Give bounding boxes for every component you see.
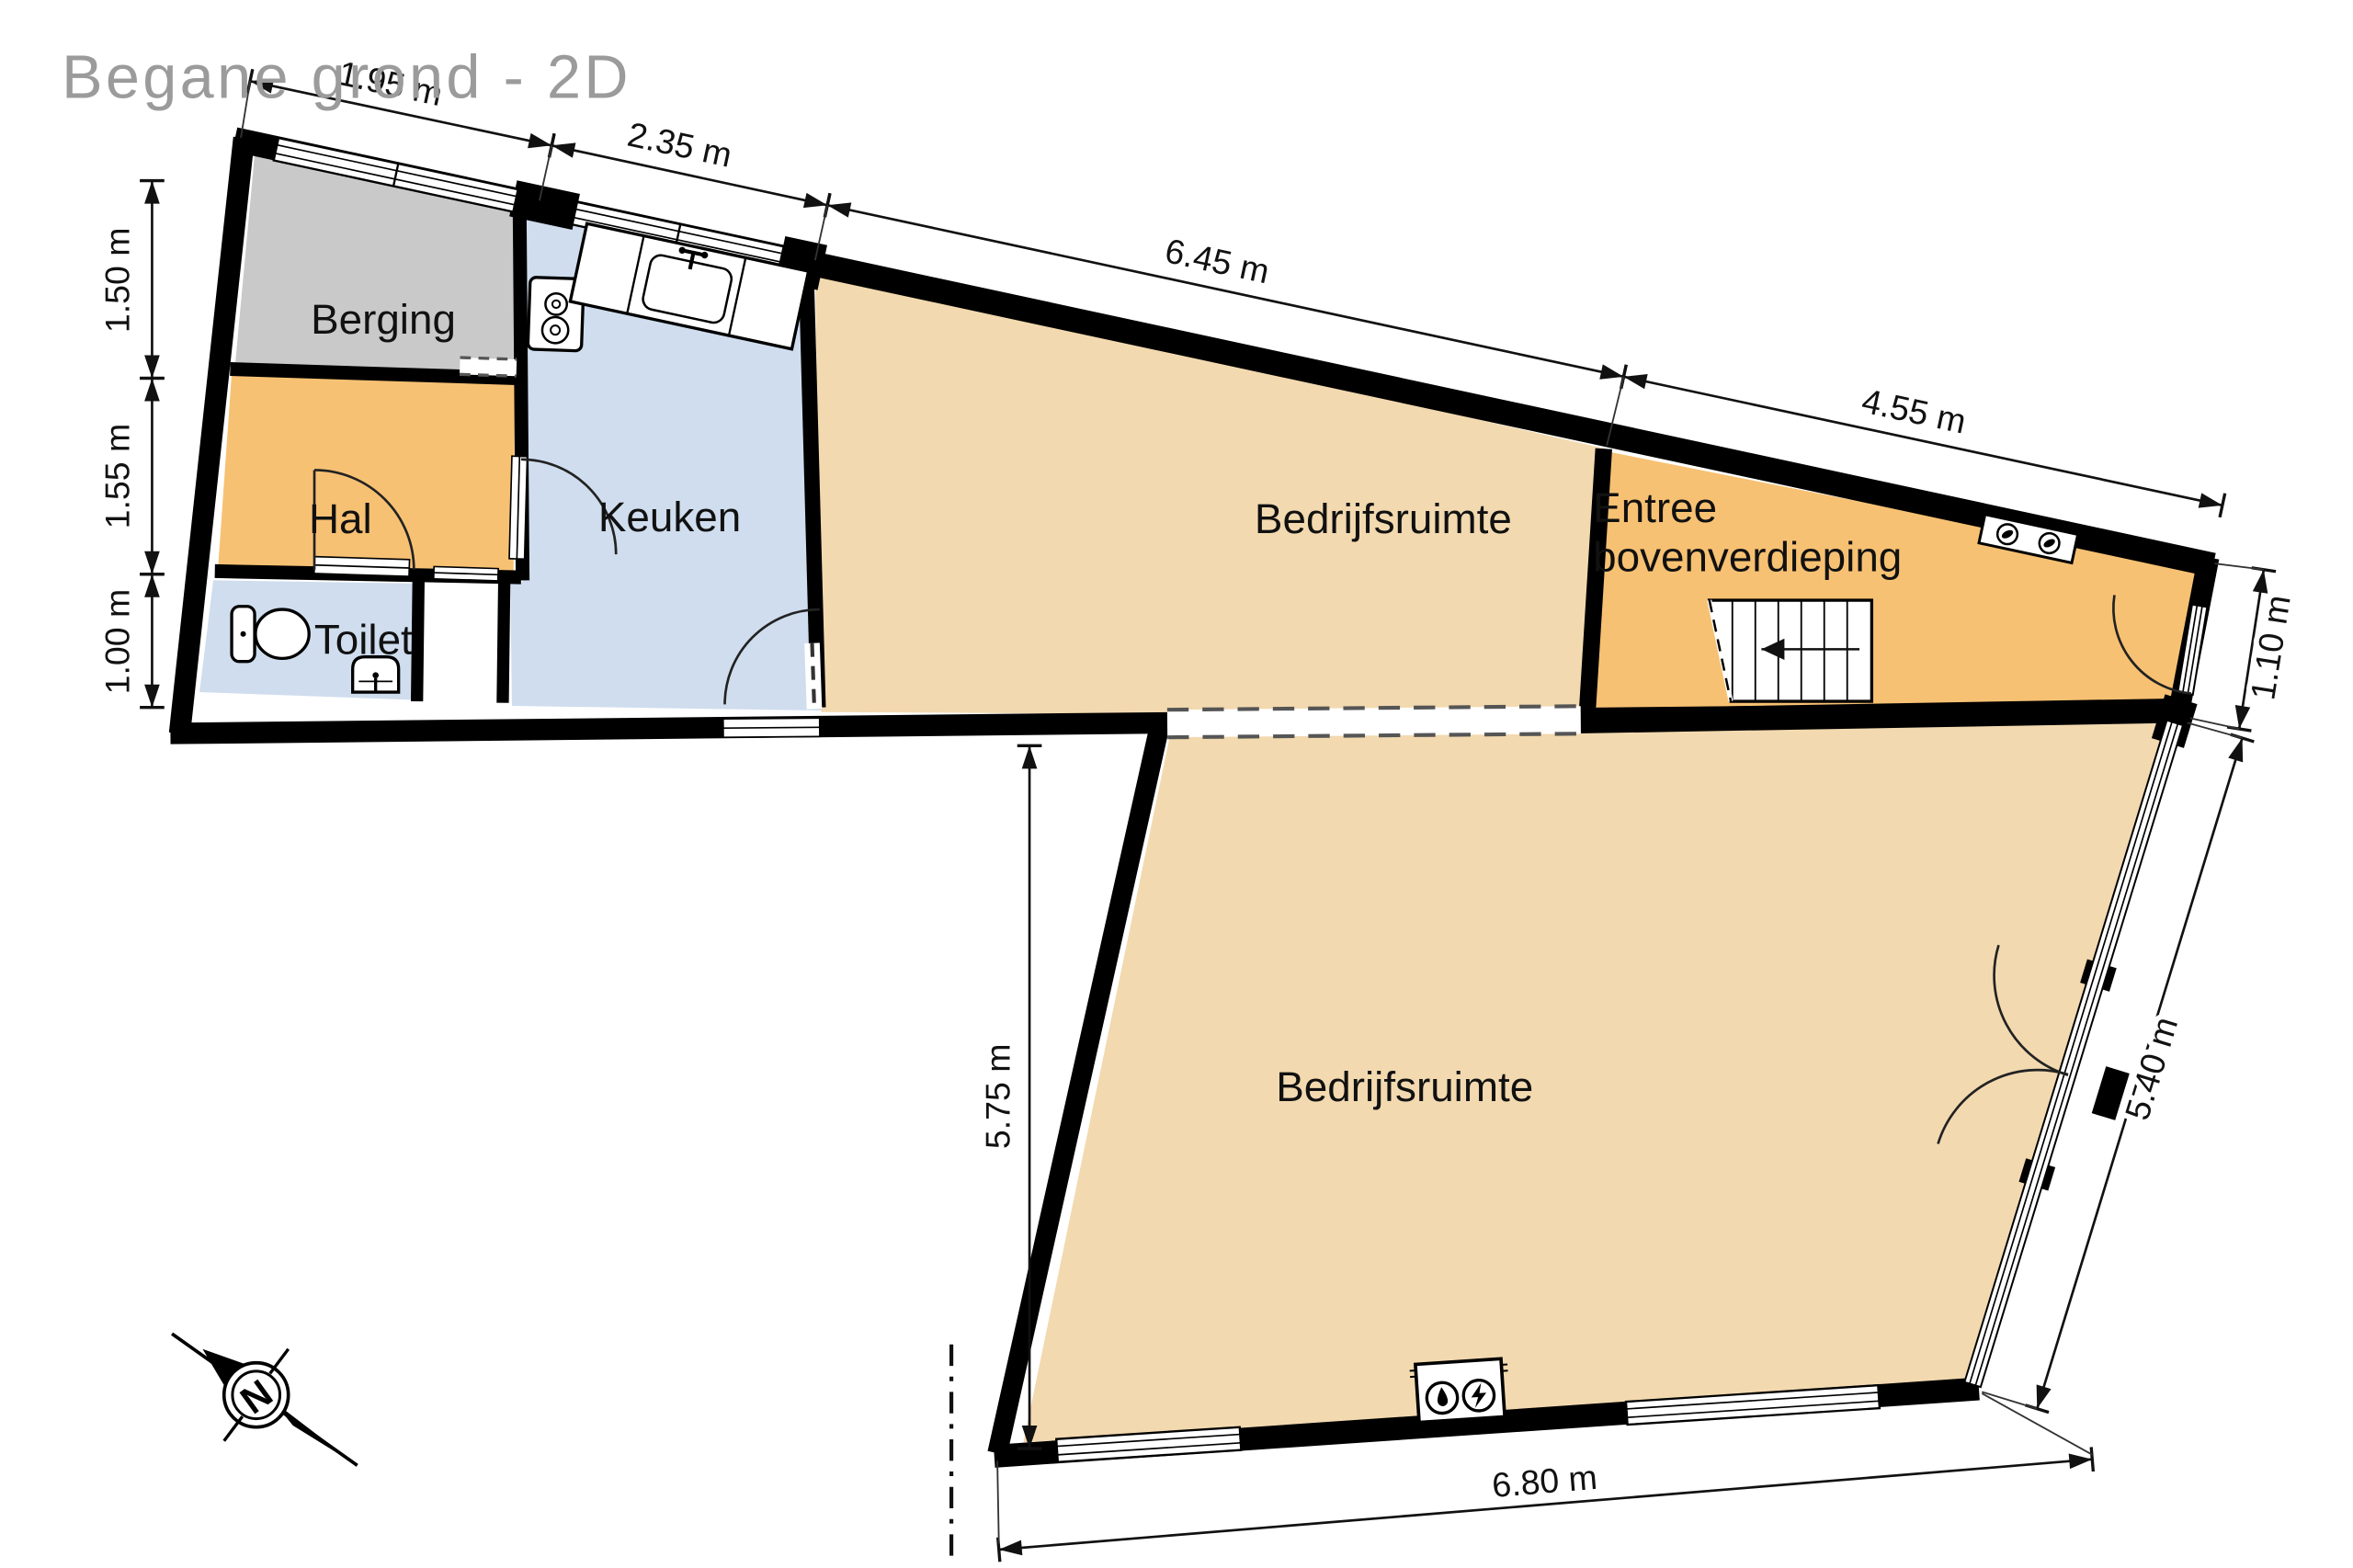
room-label-bedrijfsruimte-onder: Bedrijfsruimte [1276,1063,1533,1110]
room-label-entree-line2: bovenverdieping [1593,533,1902,580]
room-floor-bedrijfsruimte-onder [1023,712,2181,1443]
wall-closet-keuken [503,582,505,703]
room-label-berging: Berging [311,296,456,343]
dimension-label-5-75: 5.75 m [978,1044,1017,1150]
extension-line [2188,722,2243,738]
extension-line [1982,1393,2092,1455]
room-label-hal: Hal [309,495,372,542]
utility-meters-icon [1409,1358,1511,1423]
toilet-icon [232,607,309,662]
dimension-label-1-00: 1.00 m [97,589,136,695]
wall-entree-bottom [1577,710,2185,722]
room-floor-bedrijfsruimte-boven [815,268,1606,717]
door-sill-hal-toilet [314,557,410,577]
room-floor-closet [420,582,500,701]
page-title: Begane grond - 2D [62,44,631,112]
dashed-opening-keuken-wall [804,642,822,709]
extension-line [997,1460,999,1543]
extension-line [2215,563,2264,570]
extension-line [2190,718,2239,729]
room-floor-hal [218,374,515,579]
dashed-opening-bedrijfsruimte [1167,706,1581,737]
floor-plan: 1.95 m 2.35 m 6.45 m 4.55 m 1.50 m 1.55 … [0,0,2353,1568]
dimension-label-6-80: 6.80 m [1491,1458,1599,1505]
door-sill-hal-keuken [509,456,528,559]
room-label-toilet: Toilet [314,616,413,663]
door-sill-keuken-exterior [723,718,820,737]
extension-line [1982,1392,2037,1408]
dimension-label-1-10: 1.10 m [2243,593,2297,703]
room-label-keuken: Keuken [598,494,741,540]
room-label-bedrijfsruimte-boven: Bedrijfsruimte [1255,495,1512,542]
north-compass-icon: N [172,1334,358,1465]
door-sill-closet [434,566,498,581]
wall-toilet-closet [417,580,419,701]
dimension-label-5-40: 5.40 m [2118,1012,2186,1124]
dimension-label-1-55: 1.55 m [97,424,136,529]
dashed-opening-berging [460,358,517,376]
dimension-label-1-50: 1.50 m [97,228,136,334]
room-label-entree-line1: Entree [1593,484,1717,531]
stairs [1710,600,1872,701]
